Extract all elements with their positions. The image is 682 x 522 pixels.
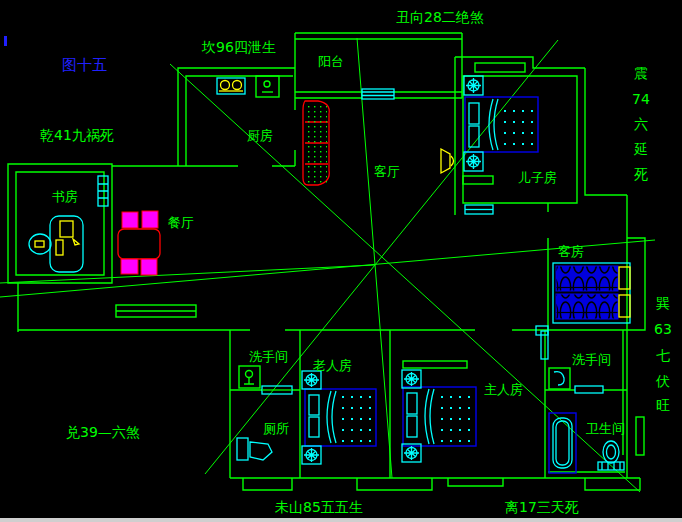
dining-set xyxy=(118,211,160,275)
dining-table xyxy=(118,229,160,259)
son-room-shelf xyxy=(463,176,493,184)
desk-chair xyxy=(29,234,51,254)
washroom-right-window xyxy=(575,386,603,393)
room-label-toilet: 厕所 xyxy=(263,421,289,436)
room-label-dining: 餐厅 xyxy=(168,215,194,230)
room-label-washroom-right: 洗手间 xyxy=(572,352,611,367)
pillow xyxy=(619,295,630,317)
mattress xyxy=(438,392,473,443)
nightstand-lamp xyxy=(464,152,483,171)
room-label-living: 客厅 xyxy=(374,164,400,179)
bed-son-room xyxy=(464,76,538,171)
beds-guest-room xyxy=(553,263,630,323)
room-label-elder-room: 老人房 xyxy=(312,358,352,373)
window-bottom-edge xyxy=(0,518,682,522)
dining-chair xyxy=(122,212,138,228)
annotation-right-lower: 巽 63 七 伏 旺 xyxy=(654,295,672,413)
annotation-char: 74 xyxy=(632,91,650,107)
mattress xyxy=(340,394,373,443)
annotation-char: 七 xyxy=(656,347,670,363)
study-desk-set xyxy=(29,216,83,272)
annotation-bottom-center: 未山85五五生 xyxy=(275,499,363,515)
toilet xyxy=(237,438,272,460)
nightstand-lamp xyxy=(402,444,421,462)
son-room-wardrobe xyxy=(475,63,525,72)
annotation-right-upper: 震 74 六 延 死 xyxy=(632,65,650,182)
dining-chair xyxy=(142,211,158,228)
porch-steps xyxy=(243,478,640,490)
room-label-kitchen: 厨房 xyxy=(247,128,273,143)
sofa xyxy=(303,101,329,185)
annotation-char: 六 xyxy=(634,116,648,132)
balcony-window xyxy=(362,89,394,99)
dining-chair xyxy=(141,259,157,275)
mouse-arrow xyxy=(73,239,79,245)
floorplan-drawing: 阳台 厨房 书房 餐厅 客厅 儿子房 客房 洗手间 厕所 老人房 主人房 洗手间… xyxy=(0,0,682,522)
annotation-top-left: 坎96四泄生 xyxy=(201,39,276,55)
kitchen-fixtures xyxy=(217,76,279,97)
kitchen-walls xyxy=(178,68,295,166)
nightstand-lamp xyxy=(302,371,321,389)
tv-set xyxy=(441,149,454,173)
annotation-char: 旺 xyxy=(656,397,670,413)
room-label-son-room: 儿子房 xyxy=(518,170,557,185)
room-label-bathroom: 卫生间 xyxy=(586,421,625,436)
nightstand-lamp xyxy=(302,446,321,464)
washroom-left-sink xyxy=(239,366,260,388)
burner xyxy=(221,81,230,90)
sofa-cushion-dots xyxy=(306,103,327,183)
annotation-char: 巽 xyxy=(656,295,670,311)
room-label-balcony: 阳台 xyxy=(318,54,344,69)
burner xyxy=(233,81,242,90)
room-labels: 阳台 厨房 书房 餐厅 客厅 儿子房 客房 洗手间 厕所 老人房 主人房 洗手间… xyxy=(52,54,625,436)
floorplan-canvas: 阳台 厨房 书房 餐厅 客厅 儿子房 客房 洗手间 厕所 老人房 主人房 洗手间… xyxy=(0,0,682,522)
annotation-char: 伏 xyxy=(655,373,670,389)
annotation-bottom-right: 离17三天死 xyxy=(505,499,579,515)
chair-seat xyxy=(35,241,44,247)
nightstand-lamp xyxy=(464,76,483,95)
son-room-east-wall xyxy=(585,68,627,195)
balcony-top-wall xyxy=(295,33,462,39)
annotation-char: 死 xyxy=(634,166,648,182)
room-label-master-room: 主人房 xyxy=(484,382,523,397)
annotation-char: 震 xyxy=(634,65,648,81)
study-window xyxy=(98,176,108,206)
stray-mark xyxy=(4,36,7,46)
annotation-bottom-left: 兑39—六煞 xyxy=(66,424,140,440)
annotation-char: 63 xyxy=(654,321,672,337)
washroom-left-door xyxy=(262,386,292,394)
room-label-guest-room: 客房 xyxy=(558,244,584,259)
washroom-right-sink xyxy=(549,368,570,389)
dining-chair xyxy=(121,259,138,274)
kitchen-faucet xyxy=(264,81,270,87)
computer-monitor xyxy=(60,221,73,237)
east-pilaster xyxy=(636,417,644,455)
nightstand-lamp xyxy=(402,370,421,388)
son-room-south-window xyxy=(465,205,493,214)
bed-master-room xyxy=(402,370,476,462)
room-label-study: 书房 xyxy=(52,189,78,204)
bed-elder-room xyxy=(302,371,376,464)
annotation-left: 乾41九祸死 xyxy=(40,127,114,143)
pillow xyxy=(619,267,630,289)
computer-tower xyxy=(56,240,63,255)
guest-bed xyxy=(556,294,618,319)
mattress xyxy=(503,102,536,150)
annotation-top-center: 丑向28二绝煞 xyxy=(396,9,484,25)
figure-number-label: 图十五 xyxy=(62,56,107,74)
guest-bed xyxy=(556,266,618,291)
master-room-shelf xyxy=(403,361,467,368)
annotation-char: 延 xyxy=(633,141,648,157)
room-label-washroom-left: 洗手间 xyxy=(249,349,288,364)
